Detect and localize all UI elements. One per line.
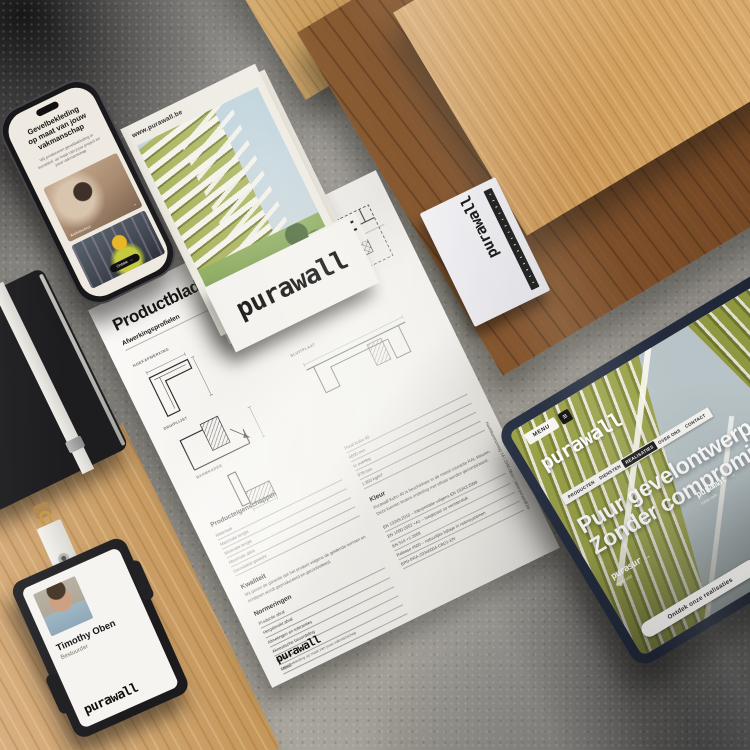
scene: purawall Productblad Afwerkingsprofielen…: [0, 0, 750, 750]
badge-photo: [33, 576, 94, 637]
phone-screen: Gevelbekleding op maat van jouw vakmansc…: [1, 81, 174, 304]
badge-logo: purawall: [82, 681, 141, 718]
arrow-icon: →: [129, 257, 134, 262]
phone-card-caption: Architectuur: [70, 224, 92, 238]
phone-card-button-label: Ontdek: [116, 260, 129, 269]
phone-card-button[interactable]: Ontdek →: [109, 252, 141, 273]
profile-drawing: [293, 306, 428, 406]
arrow-icon: →: [131, 201, 138, 209]
hamburger-icon: ≡: [561, 412, 569, 421]
